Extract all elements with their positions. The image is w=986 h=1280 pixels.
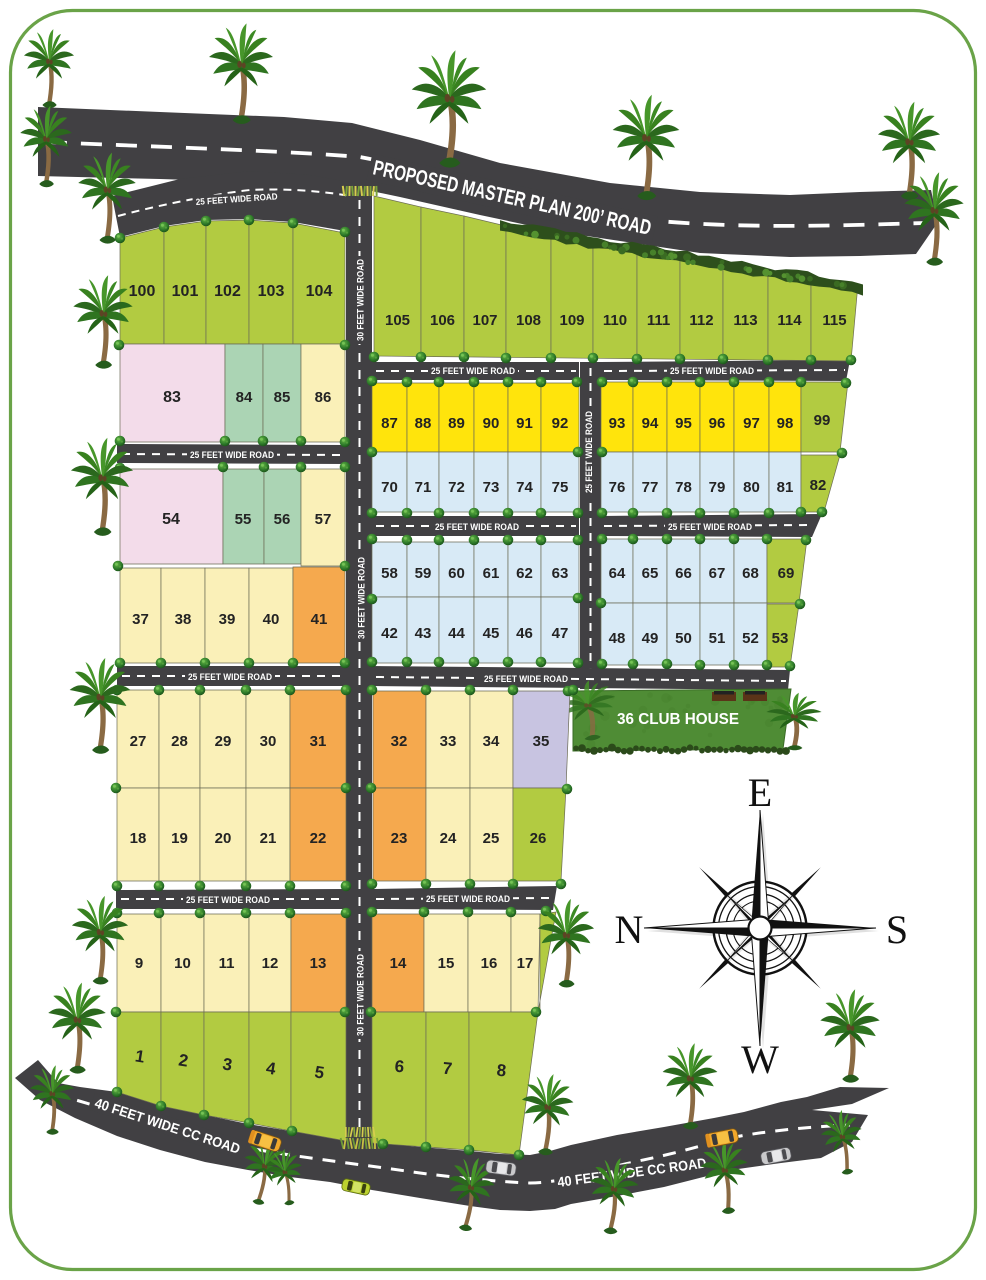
svg-text:20: 20: [215, 830, 232, 847]
svg-text:74: 74: [516, 479, 533, 496]
svg-text:77: 77: [642, 479, 659, 496]
svg-text:109: 109: [559, 312, 584, 329]
svg-text:95: 95: [675, 415, 692, 432]
svg-text:30 FEET WIDE ROAD: 30 FEET WIDE ROAD: [357, 557, 367, 639]
svg-text:29: 29: [215, 733, 232, 750]
svg-text:46: 46: [516, 625, 533, 642]
svg-text:87: 87: [381, 415, 398, 432]
svg-text:30 FEET WIDE ROAD: 30 FEET WIDE ROAD: [356, 259, 366, 341]
svg-text:63: 63: [552, 565, 569, 582]
svg-text:33: 33: [440, 733, 457, 750]
svg-text:25 FEET WIDE ROAD: 25 FEET WIDE ROAD: [484, 674, 568, 684]
svg-text:47: 47: [552, 625, 569, 642]
svg-text:83: 83: [163, 389, 181, 406]
svg-text:86: 86: [315, 389, 332, 406]
svg-text:66: 66: [675, 565, 692, 582]
svg-text:23: 23: [391, 830, 408, 847]
svg-text:W: W: [741, 1037, 779, 1082]
svg-text:71: 71: [415, 479, 432, 496]
svg-text:25 FEET WIDE ROAD: 25 FEET WIDE ROAD: [190, 450, 274, 460]
svg-text:26: 26: [530, 830, 547, 847]
svg-text:43: 43: [415, 625, 432, 642]
svg-text:114: 114: [777, 312, 802, 329]
svg-text:39: 39: [219, 611, 236, 628]
svg-text:103: 103: [258, 283, 285, 300]
svg-text:70: 70: [381, 479, 398, 496]
svg-text:35: 35: [533, 733, 550, 750]
svg-text:61: 61: [483, 565, 500, 582]
svg-text:21: 21: [260, 830, 277, 847]
svg-text:30 FEET WIDE ROAD: 30 FEET WIDE ROAD: [356, 954, 366, 1036]
svg-text:59: 59: [415, 565, 432, 582]
svg-text:31: 31: [310, 733, 327, 750]
svg-text:110: 110: [603, 312, 627, 329]
svg-text:25 FEET WIDE ROAD: 25 FEET WIDE ROAD: [435, 522, 519, 532]
svg-text:25 FEET WIDE ROAD: 25 FEET WIDE ROAD: [668, 522, 752, 532]
svg-text:99: 99: [814, 412, 831, 429]
svg-text:98: 98: [777, 415, 794, 432]
svg-text:94: 94: [642, 415, 659, 432]
svg-text:8: 8: [496, 1061, 507, 1081]
svg-text:78: 78: [675, 479, 692, 496]
svg-text:25 FEET WIDE ROAD: 25 FEET WIDE ROAD: [186, 895, 270, 905]
svg-text:25 FEET WIDE ROAD: 25 FEET WIDE ROAD: [431, 366, 515, 376]
svg-text:93: 93: [609, 415, 626, 432]
svg-text:84: 84: [236, 389, 253, 406]
svg-text:25: 25: [483, 830, 500, 847]
svg-text:102: 102: [214, 283, 241, 300]
svg-text:52: 52: [742, 630, 759, 647]
svg-text:53: 53: [772, 630, 789, 647]
svg-text:57: 57: [315, 511, 332, 528]
svg-text:11: 11: [219, 955, 235, 972]
svg-text:64: 64: [609, 565, 626, 582]
svg-text:58: 58: [381, 565, 398, 582]
svg-text:37: 37: [132, 611, 149, 628]
svg-text:96: 96: [709, 415, 726, 432]
svg-text:56: 56: [274, 511, 291, 528]
svg-text:115: 115: [822, 312, 846, 329]
svg-text:7: 7: [442, 1059, 453, 1079]
svg-text:89: 89: [448, 415, 465, 432]
svg-text:90: 90: [483, 415, 500, 432]
svg-text:48: 48: [609, 630, 626, 647]
svg-text:85: 85: [274, 389, 291, 406]
svg-text:13: 13: [310, 955, 327, 972]
svg-text:34: 34: [483, 733, 500, 750]
svg-text:62: 62: [516, 565, 533, 582]
svg-text:73: 73: [483, 479, 500, 496]
svg-text:113: 113: [733, 312, 757, 329]
svg-text:76: 76: [609, 479, 626, 496]
svg-text:9: 9: [135, 955, 143, 972]
svg-text:45: 45: [483, 625, 500, 642]
svg-text:17: 17: [517, 955, 534, 972]
svg-text:108: 108: [516, 312, 541, 329]
svg-text:49: 49: [642, 630, 659, 647]
svg-text:97: 97: [743, 415, 760, 432]
svg-text:12: 12: [262, 955, 279, 972]
svg-text:14: 14: [390, 955, 407, 972]
svg-text:75: 75: [552, 479, 569, 496]
svg-text:88: 88: [415, 415, 432, 432]
svg-text:40: 40: [263, 611, 280, 628]
svg-text:82: 82: [810, 477, 827, 494]
svg-text:27: 27: [130, 733, 147, 750]
svg-text:65: 65: [642, 565, 659, 582]
svg-text:32: 32: [391, 733, 408, 750]
svg-text:69: 69: [778, 565, 795, 582]
svg-text:36 CLUB HOUSE: 36 CLUB HOUSE: [617, 711, 739, 728]
svg-text:28: 28: [171, 733, 188, 750]
svg-text:44: 44: [448, 625, 465, 642]
svg-text:E: E: [748, 770, 772, 815]
svg-text:25 FEET WIDE ROAD: 25 FEET WIDE ROAD: [426, 894, 510, 904]
svg-text:105: 105: [385, 312, 410, 329]
svg-text:112: 112: [689, 312, 713, 329]
svg-text:19: 19: [171, 830, 188, 847]
svg-text:30: 30: [260, 733, 277, 750]
svg-text:15: 15: [438, 955, 455, 972]
svg-text:107: 107: [472, 312, 497, 329]
svg-text:25 FEET WIDE ROAD: 25 FEET WIDE ROAD: [188, 672, 272, 682]
svg-text:6: 6: [394, 1057, 405, 1077]
svg-text:N: N: [615, 907, 644, 952]
svg-text:79: 79: [709, 479, 726, 496]
svg-text:104: 104: [306, 283, 333, 300]
svg-text:106: 106: [430, 312, 455, 329]
svg-text:S: S: [886, 907, 908, 952]
svg-text:41: 41: [311, 611, 328, 628]
svg-text:111: 111: [647, 312, 670, 329]
svg-text:51: 51: [709, 630, 726, 647]
svg-text:16: 16: [481, 955, 498, 972]
svg-text:10: 10: [174, 955, 191, 972]
svg-text:18: 18: [130, 830, 147, 847]
svg-text:68: 68: [742, 565, 759, 582]
svg-text:22: 22: [310, 830, 327, 847]
svg-text:50: 50: [675, 630, 692, 647]
svg-text:81: 81: [777, 479, 794, 496]
svg-text:25 FEET WIDE ROAD: 25 FEET WIDE ROAD: [670, 366, 754, 376]
svg-text:91: 91: [516, 415, 533, 432]
svg-text:72: 72: [448, 479, 465, 496]
svg-text:55: 55: [235, 511, 252, 528]
svg-text:80: 80: [743, 479, 760, 496]
svg-text:60: 60: [448, 565, 465, 582]
svg-text:24: 24: [440, 830, 457, 847]
svg-text:38: 38: [175, 611, 192, 628]
svg-text:54: 54: [162, 511, 180, 528]
svg-text:101: 101: [172, 283, 199, 300]
svg-text:42: 42: [381, 625, 398, 642]
svg-text:67: 67: [709, 565, 726, 582]
svg-text:25 FEET WIDE ROAD: 25 FEET WIDE ROAD: [584, 411, 594, 493]
svg-text:92: 92: [552, 415, 569, 432]
svg-text:100: 100: [129, 283, 156, 300]
